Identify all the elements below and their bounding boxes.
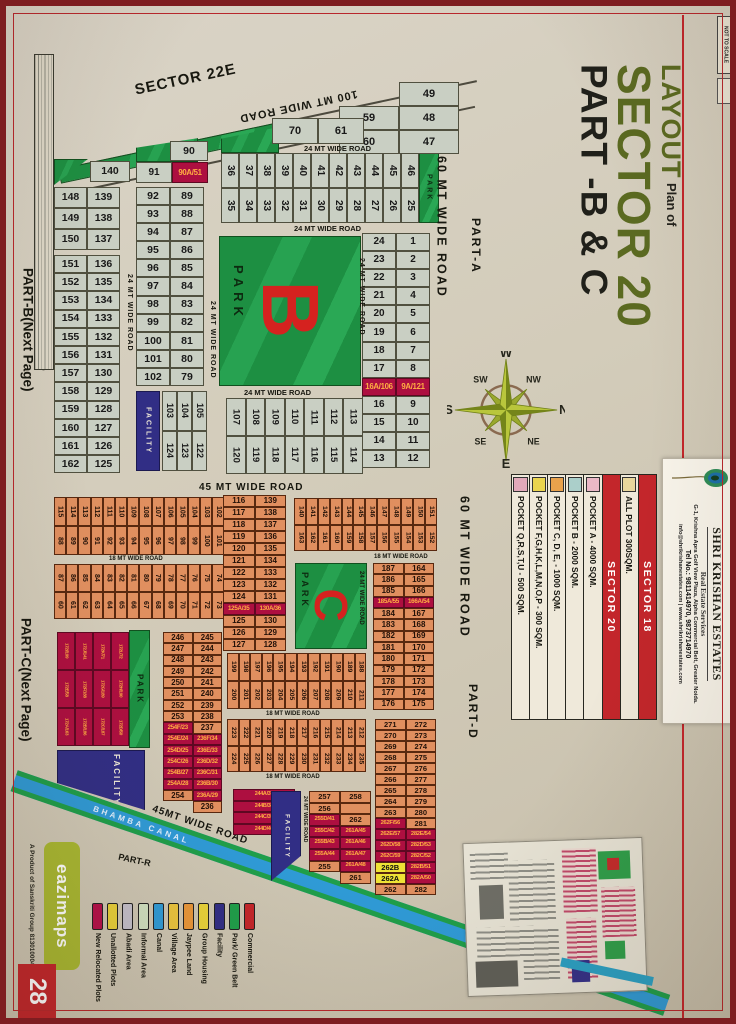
plot-cell-90: 90 (170, 141, 208, 161)
compass-se: SE (475, 436, 487, 446)
plot-cell: 27 (365, 188, 383, 223)
plot-cell: 232 (320, 746, 332, 773)
facility-label: FACILITY (137, 392, 159, 470)
plot-cell: 111 (304, 398, 324, 436)
compass-sw: SW (473, 374, 488, 384)
plot-cell: 272 (406, 719, 437, 730)
plot-cell: 261A/46 (340, 837, 371, 849)
plot-cell: 91 (136, 162, 172, 183)
plot-cell: 153 (54, 291, 87, 309)
road-24mt-label: 24 MT WIDE ROAD (358, 258, 365, 336)
plot-cell: 85 (170, 259, 204, 277)
plot-cell: 228 (273, 746, 285, 773)
plot-cell: 132 (255, 579, 287, 591)
plot-cell: 236B/30 (193, 779, 223, 790)
plot-cell: 125A/35 (223, 603, 255, 615)
plot-grid-140-163: 1401631411621421611431601441591451581461… (294, 498, 437, 551)
plot-grid-255-262: 257258256255D/41262255C/42261A/45255B/43… (309, 791, 371, 884)
plot-cell: 176 (373, 699, 404, 710)
plot-cell: 96 (152, 526, 164, 555)
plot-cell: 65 (115, 592, 127, 620)
plot-cell: 254D/25 (163, 745, 193, 756)
plot-cell: 107 (152, 497, 164, 526)
plot-cell: 212 (355, 719, 367, 746)
plot-cell: 39 (275, 153, 293, 188)
plot-cell: 87 (170, 223, 204, 241)
plot-cell: 196 (262, 653, 274, 681)
plot-cell: 87 (54, 564, 66, 592)
road-24mt-label: 24 MT WIDE ROAD (304, 145, 371, 153)
plot-cell: 17 (362, 360, 396, 378)
plot-cell: 16 (362, 396, 396, 414)
plot-cell: 172G/189 (93, 670, 111, 708)
plot-cell: 140 (294, 498, 306, 525)
plot-cell: 14 (362, 432, 396, 450)
plot-cell: 62 (78, 592, 90, 620)
plot-cell: 255 (309, 861, 340, 873)
plot-cell: 217 (297, 719, 309, 746)
legend-item: Informal Area (138, 903, 149, 1021)
plot-cell: 251 (163, 688, 193, 699)
plot-cell: 103 (162, 391, 177, 431)
plot-grid-236-254: 2462452472442482432492422502412512402522… (163, 632, 222, 813)
plot-cell: 119 (223, 531, 255, 543)
plot-cell: 181 (373, 642, 404, 653)
estate-card: SHRI KRISHAN ESTATES Real Estate Service… (662, 458, 736, 724)
plot-cell: 123 (223, 579, 255, 591)
estate-email: info@shrikrishanestates.com | www.shrikr… (677, 524, 683, 684)
plot-cell: 157 (54, 364, 87, 382)
plot-cell: 133 (255, 567, 287, 579)
legend-item: Jaypee Land (183, 903, 194, 1021)
plot-cell: 123 (177, 431, 192, 471)
plot-cell: 158 (54, 382, 87, 400)
plot-cell: 254F/23 (163, 722, 193, 733)
plot-cell: 64 (103, 592, 115, 620)
road-24mt-label: 24 MT WIDE ROAD (209, 301, 216, 379)
compass-nw: NW (526, 374, 541, 384)
plot-cell: 247 (163, 643, 193, 654)
plot-cell: 261 (340, 872, 371, 884)
plot-cell: 235 (355, 746, 367, 773)
plot-cell: 79 (170, 368, 204, 386)
plot-cell: 122 (192, 431, 207, 471)
plot-cell: 37 (239, 153, 257, 188)
plot-cell: 158 (353, 525, 365, 552)
plot-grid-79-102: 9289938894879586968597849883998210081101… (136, 187, 204, 386)
plot-cell: 121 (223, 555, 255, 567)
plot-cell: 157 (365, 525, 377, 552)
plot-cell: 139 (255, 495, 287, 507)
plot-cell: 131 (255, 591, 287, 603)
plot-cell: 119 (246, 436, 266, 474)
plot-cell: 115 (324, 436, 344, 474)
plot-cell: 7 (396, 342, 430, 360)
table-row: ALL PLOT 300SQM. (620, 475, 638, 719)
plot-cell: 148 (389, 498, 401, 525)
road-18mt-label: 18 MT WIDE ROAD (374, 554, 428, 560)
legend-swatch (229, 903, 240, 930)
plot-cell: 254A/28 (163, 779, 193, 790)
estate-address: G-1, Krishna Apra Golf View Plaza, Alpha… (691, 504, 698, 703)
park-strip: PARK (129, 630, 150, 748)
plot-cell: 34 (239, 188, 257, 223)
plot-cell: 167 (404, 608, 435, 619)
legend-label: Group Housing (200, 933, 207, 1021)
plot-cell: 200 (227, 681, 239, 709)
plot-cell: 177 (373, 687, 404, 698)
plot-cell: 168 (404, 619, 435, 630)
plot-cell: 8 (396, 360, 430, 378)
plot-cell: 108 (139, 497, 151, 526)
plot-cell: 172A/163 (57, 708, 75, 746)
legend-label: Facility (216, 933, 223, 1021)
plot-cell: 40 (293, 153, 311, 188)
legend-swatch (198, 903, 209, 930)
not-to-scale-box: NOT TO SCALE (717, 16, 734, 74)
plot-cell: 261A/45 (340, 826, 371, 838)
plot-cell: 236 (193, 801, 223, 812)
plot-cell: 15 (362, 414, 396, 432)
plot-cell: 254C/26 (163, 756, 193, 767)
plot-cell: 240 (193, 688, 223, 699)
plot-cell: 130 (255, 615, 287, 627)
plot-cell: 80 (139, 564, 151, 592)
table-row: POCKET Q,R,S,T,U - 500 SQM. (512, 475, 529, 719)
plot-cell: 150 (413, 498, 425, 525)
plot-cell: 142 (318, 498, 330, 525)
plot-cell: 2 (396, 251, 430, 269)
plot-cell: 156 (377, 525, 389, 552)
plot-cell: 276 (406, 763, 437, 774)
plot-cell: 137 (255, 519, 287, 531)
plot-cell: 1 (396, 233, 430, 251)
plot-cell: 98 (136, 296, 170, 314)
plot-cell: 172I/199 (57, 632, 75, 670)
plot-cell: 112 (91, 497, 103, 526)
plot-cell: 238 (193, 711, 223, 722)
plot-cell: 229 (285, 746, 297, 773)
plot-cell: 211 (355, 681, 367, 709)
plot-cell: 77 (176, 564, 188, 592)
plot-cell: 199 (227, 653, 239, 681)
row-color-swatch (514, 477, 528, 492)
plot-cell: 91 (91, 526, 103, 555)
plot-cell: 23 (362, 251, 396, 269)
plot-grid-91: 9190A/51 (136, 162, 208, 183)
legend-label: Unallotted Plots (109, 933, 116, 1021)
plot-cell: 113 (78, 497, 90, 526)
plot-cell: 273 (406, 730, 437, 741)
plot-cell: 130A/36 (255, 603, 287, 615)
plot-cell-140: 140 (90, 161, 130, 182)
plot-cell: 133 (87, 310, 120, 328)
plot-cell: 166A/54 (404, 597, 435, 608)
plot-cell: 180 (373, 653, 404, 664)
legend-swatch (138, 903, 149, 930)
park-label: PARK (232, 265, 245, 321)
plot-cell: 141 (306, 498, 318, 525)
plot-cell: 258 (340, 791, 371, 803)
plot-cell: 25 (401, 188, 419, 223)
plot-cell: 76 (188, 564, 200, 592)
plot-cell: 255A/44 (309, 849, 340, 861)
legend-swatch (244, 903, 255, 930)
plot-cell: 262 (375, 884, 406, 895)
plot-cell: 61 (66, 592, 78, 620)
plot-cell: 268 (375, 752, 406, 763)
legend-item: Abadi Area (122, 903, 133, 1021)
plot-cell: 213 (343, 719, 355, 746)
plot-cell: 250 (163, 677, 193, 688)
plot-cell: 120 (226, 436, 246, 474)
plot-cell: 169 (404, 631, 435, 642)
legend-item: Park/ Green Belt (229, 903, 240, 1021)
plot-cell: 105 (192, 391, 207, 431)
plot-cell: 249 (163, 666, 193, 677)
plot-cell: 45 (383, 153, 401, 188)
plot-cell: 192 (308, 653, 320, 681)
plot-cell: 22 (362, 269, 396, 287)
plot-cell: 18 (362, 342, 396, 360)
plot-cell: 136 (255, 531, 287, 543)
plot-grid-116-139: 1161391171381181371191361201351211341221… (223, 495, 286, 651)
plot-cell: 104 (177, 391, 192, 431)
plot-cell: 207 (308, 681, 320, 709)
plot-cell: 60 (54, 592, 66, 620)
plot-cell: 173 (404, 676, 435, 687)
pocket-size-table: SECTOR 18 ALL PLOT 300SQM. SECTOR 20 POC… (511, 474, 657, 720)
plot-cell: 118 (223, 519, 255, 531)
part-a-label: PART-A (470, 218, 482, 274)
plot-cell: 70 (272, 118, 318, 144)
plot-cell: 81 (127, 564, 139, 592)
plot-cell: 239 (193, 700, 223, 711)
row-label: POCKET C, D, E, - 1000 SQM. (548, 493, 565, 719)
plot-cell: 19 (362, 323, 396, 341)
plot-cell: 226 (250, 746, 262, 773)
plot-grid-103-124: 103124104123105122 (162, 391, 207, 471)
table-row: SECTOR 20 (602, 475, 620, 719)
plot-cell: 163 (294, 525, 306, 552)
plot-cell: 129 (255, 627, 287, 639)
plot-cell: 216 (308, 719, 320, 746)
plot-cell: 143 (330, 498, 342, 525)
plot-cell: 254B/27 (163, 768, 193, 779)
plot-cell: 128 (255, 639, 287, 651)
plot-cell: 255B/43 (309, 837, 340, 849)
plot-cell: 28 (347, 188, 365, 223)
plot-cell: 83 (103, 564, 115, 592)
plot-grid-164-187: 187164186165185166185A/55166A/5418416718… (373, 563, 434, 710)
plot-cell: 135 (87, 273, 120, 291)
not-to-scale-label: NOT TO SCALE (723, 26, 729, 63)
plot-cell: 11 (396, 432, 430, 450)
table-row: POCKET F,G,H,K,L,M,N,O,P - 300 SQM. (529, 475, 547, 719)
plot-grid-1-24: 24123222321420519618717816A/1069A/121169… (362, 233, 430, 468)
table-row: POCKET A - 4000 SQM. (584, 475, 602, 719)
plot-cell: 125 (223, 615, 255, 627)
plot-cell: 43 (347, 153, 365, 188)
legend-label: Commercial (246, 933, 253, 1021)
plot-cell: 97 (136, 277, 170, 295)
park-c-letter: C (308, 588, 354, 621)
plot-cell: 75 (200, 564, 212, 592)
plot-cell: 162 (306, 525, 318, 552)
estate-tagline: Real Estate Services (699, 572, 708, 637)
plot-grid-172-relocated: 172I/199172J/141172K/71172L/72172E/58172… (57, 632, 129, 746)
plot-cell: 31 (293, 188, 311, 223)
road-24mt-label: 24 MT WIDE ROAD (302, 796, 307, 842)
plot-cell: 172 (404, 665, 435, 676)
plot-cell: 281 (406, 818, 437, 829)
plot-cell: 97 (164, 526, 176, 555)
plot-cell: 269 (375, 741, 406, 752)
plot-cell: 155 (54, 328, 87, 346)
plot-cell: 89 (170, 187, 204, 205)
row-color-swatch (550, 477, 564, 492)
plot-grid-125-162: 1511361521351531341541331551321561311571… (54, 255, 120, 473)
page-number: 28 (23, 978, 51, 1005)
plot-cell: 130 (87, 364, 120, 382)
row-label: SECTOR 18 (639, 475, 656, 719)
plot-cell: 236F/34 (193, 734, 223, 745)
legend-swatch (214, 903, 225, 930)
plot-cell: 104 (188, 497, 200, 526)
legend-item: New Relocated Plots (92, 903, 103, 1021)
plot-cell: 215 (320, 719, 332, 746)
plot-cell: 185A/55 (373, 597, 404, 608)
plot-cell: 193 (297, 653, 309, 681)
plot-cell: 90 (78, 526, 90, 555)
plot-cell: 172E/58 (57, 670, 75, 708)
plot-cell: 67 (139, 592, 151, 620)
plot-grid-262-282: 2712722702732692742682752672762662772652… (375, 719, 436, 895)
plot-cell: 26 (383, 188, 401, 223)
plot-cell: 254E/24 (163, 734, 193, 745)
plot-cell: 12 (396, 450, 430, 468)
row-color-swatch (532, 477, 546, 492)
plot-cell: 147 (377, 498, 389, 525)
plot-cell: 223 (227, 719, 239, 746)
road-45mt-label: 45 MT WIDE ROAD (199, 483, 303, 493)
plot-cell: 227 (262, 746, 274, 773)
plot-cell: 63 (91, 592, 103, 620)
plot-cell: 66 (127, 592, 139, 620)
plot-cell: 267 (375, 763, 406, 774)
title-layout: LAYOUT (656, 64, 686, 179)
part-d-label: PART-D (467, 684, 479, 740)
plot-cell: 149 (401, 498, 413, 525)
plot-cell: 105 (176, 497, 188, 526)
plot-cell: 72 (200, 592, 212, 620)
plot-cell: 182 (373, 631, 404, 642)
sector-22e-label: SECTOR 22E (134, 61, 238, 97)
plot-grid-70-61: 7061 (272, 118, 364, 144)
plot-cell: 144 (342, 498, 354, 525)
legend-item: Group Housing (198, 903, 209, 1021)
plot-cell: 171 (404, 653, 435, 664)
road-18mt-label: 18 MT WIDE ROAD (266, 774, 320, 780)
plot-cell: 165 (404, 574, 435, 585)
plot-grid-88-115: 1158811489113901129111192110931099410895… (54, 497, 225, 555)
corner-stamp-box (717, 78, 734, 104)
plot-cell: 218 (285, 719, 297, 746)
plot-cell: 139 (87, 187, 120, 208)
plot-cell: 244 (193, 643, 223, 654)
legend-label: Jaypee Land (185, 933, 192, 1021)
plot-cell: 172C/187 (93, 708, 111, 746)
plot-cell: 252 (163, 700, 193, 711)
plot-cell: 225 (239, 746, 251, 773)
plot-cell: 146 (365, 498, 377, 525)
plot-cell: 161 (318, 525, 330, 552)
plot-cell: 230 (297, 746, 309, 773)
plot-cell: 41 (311, 153, 329, 188)
plot-cell: 195 (273, 653, 285, 681)
plot-cell: 183 (373, 619, 404, 630)
plot-cell: 231 (308, 746, 320, 773)
plot-cell: 282E/54 (406, 829, 437, 840)
legend-swatch (122, 903, 133, 930)
plot-cell: 172J/141 (75, 632, 93, 670)
plot-cell: 126 (87, 437, 120, 455)
plot-cell: 115 (54, 497, 66, 526)
plot-cell: 106 (164, 497, 176, 526)
plot-cell: 29 (329, 188, 347, 223)
legend-label: New Relocated Plots (94, 933, 101, 1021)
plot-cell: 219 (273, 719, 285, 746)
plot-cell: 131 (87, 346, 120, 364)
title-sector-20: SECTOR 20 (613, 64, 655, 476)
plot-cell: 254 (163, 790, 193, 801)
plot-cell: 99 (188, 526, 200, 555)
plot-cell: 127 (87, 419, 120, 437)
plot-cell: 170 (404, 642, 435, 653)
plot-cell: 222 (239, 719, 251, 746)
plot-cell: 264 (375, 796, 406, 807)
plot-cell: 47 (399, 130, 459, 154)
plot-cell: 236C/31 (193, 768, 223, 779)
plot-cell: 155 (389, 525, 401, 552)
map-legend: New Relocated Plots Unallotted Plots Aba… (92, 903, 255, 1021)
legend-item: Commercial (244, 903, 255, 1021)
plot-cell: 42 (329, 153, 347, 188)
plot-cell: 33 (257, 188, 275, 223)
plot-cell: 128 (87, 401, 120, 419)
plot-cell: 154 (401, 525, 413, 552)
plot-cell: 152 (54, 273, 87, 291)
plot-cell: 255C/42 (309, 826, 340, 838)
compass-e: E (502, 456, 511, 469)
plot-cell: 124 (223, 591, 255, 603)
plot-cell: 161 (54, 437, 87, 455)
plot-cell: 122 (223, 567, 255, 579)
park-label: PARK (300, 572, 309, 609)
plot-cell: 174 (404, 687, 435, 698)
plot-cell: 120 (223, 543, 255, 555)
plot-cell: 160 (330, 525, 342, 552)
plot-cell: 32 (275, 188, 293, 223)
plot-grid-212-235: 2232242222252212262202272192282182292172… (227, 719, 366, 772)
plot-grid-188-211: 1992001982011972021962031952041942051932… (227, 653, 366, 709)
plot-cell: 135 (255, 543, 287, 555)
plot-cell: 96 (136, 259, 170, 277)
peacock-feather-icon (670, 465, 730, 491)
plot-cell: 30 (311, 188, 329, 223)
plot-cell: 270 (375, 730, 406, 741)
plot-cell: 46 (401, 153, 419, 188)
